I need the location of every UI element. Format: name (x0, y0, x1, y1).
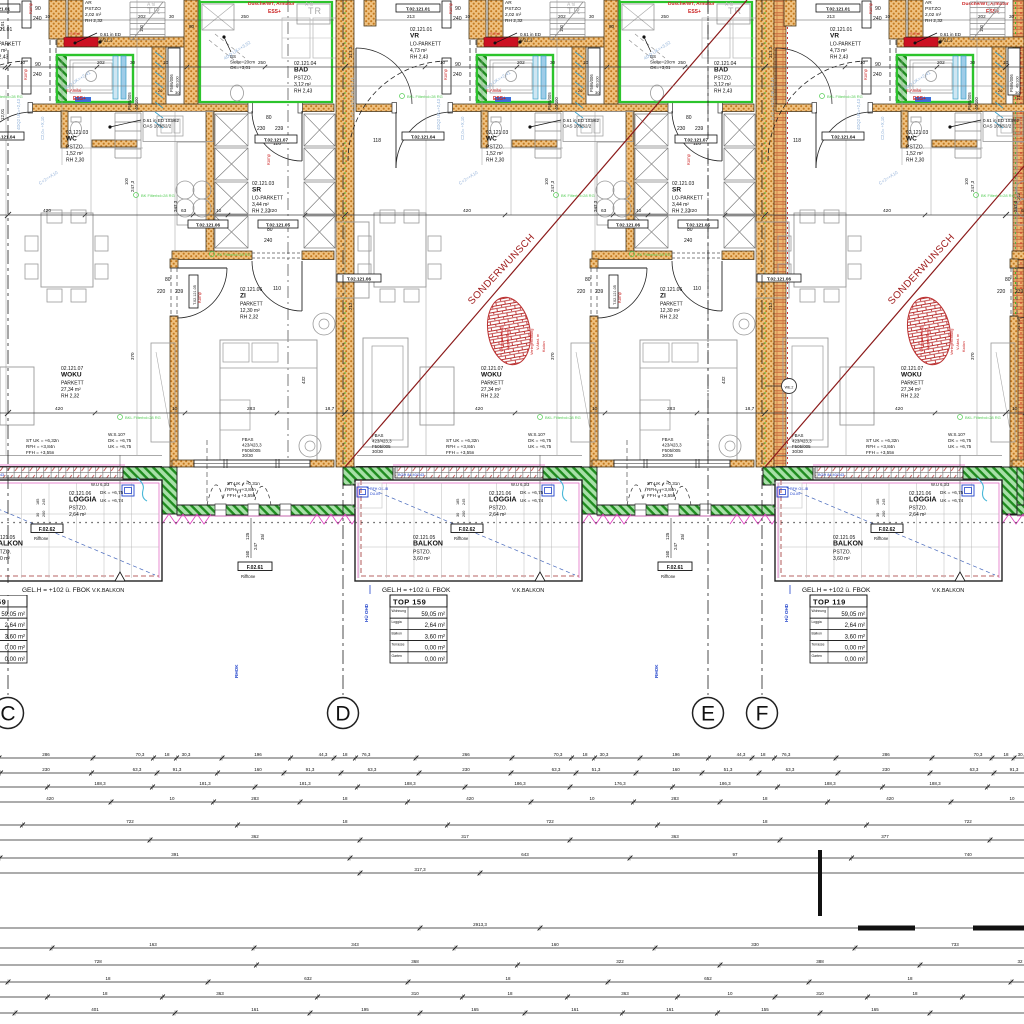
svg-text:161: 161 (251, 1007, 259, 1012)
svg-text:51,3: 51,3 (592, 767, 601, 772)
svg-text:230: 230 (42, 767, 50, 772)
svg-text:195: 195 (361, 1007, 369, 1012)
svg-text:181,3: 181,3 (199, 781, 211, 786)
svg-text:165: 165 (871, 1007, 879, 1012)
svg-text:330: 330 (751, 942, 759, 947)
svg-text:196: 196 (672, 752, 680, 757)
svg-text:176,3: 176,3 (614, 781, 626, 786)
svg-text:165: 165 (471, 1007, 479, 1012)
svg-text:70,3: 70,3 (974, 752, 983, 757)
svg-text:155: 155 (761, 1007, 769, 1012)
svg-text:362: 362 (251, 834, 259, 839)
svg-text:18: 18 (762, 796, 768, 801)
svg-text:91,3: 91,3 (1010, 767, 1019, 772)
svg-text:230: 230 (882, 767, 890, 772)
svg-text:160: 160 (672, 767, 680, 772)
svg-text:2913,3: 2913,3 (473, 922, 487, 927)
svg-text:266: 266 (462, 752, 470, 757)
svg-text:196: 196 (254, 752, 262, 757)
svg-text:317,3: 317,3 (414, 867, 426, 872)
svg-text:18: 18 (164, 752, 170, 757)
svg-text:18: 18 (505, 976, 511, 981)
svg-text:160: 160 (254, 767, 262, 772)
svg-text:12,01: 12,01 (0, 108, 5, 120)
svg-text:322: 322 (616, 959, 624, 964)
svg-text:91,3: 91,3 (306, 767, 315, 772)
svg-text:10: 10 (589, 796, 595, 801)
svg-text:160: 160 (551, 942, 559, 947)
svg-text:643: 643 (521, 852, 529, 857)
svg-text:420: 420 (46, 796, 54, 801)
svg-text:18: 18 (507, 991, 513, 996)
svg-text:63,3: 63,3 (970, 767, 979, 772)
svg-text:286: 286 (42, 752, 50, 757)
svg-text:18: 18 (760, 752, 766, 757)
svg-text:E: E (701, 703, 715, 726)
svg-text:44,3: 44,3 (737, 752, 746, 757)
svg-text:283: 283 (671, 796, 679, 801)
svg-text:420: 420 (886, 796, 894, 801)
svg-text:18: 18 (1003, 752, 1009, 757)
svg-text:632: 632 (304, 976, 312, 981)
svg-text:722: 722 (546, 819, 554, 824)
svg-text:10: 10 (1009, 796, 1015, 801)
svg-text:186,3: 186,3 (514, 781, 526, 786)
svg-text:652: 652 (704, 976, 712, 981)
svg-text:30,3: 30,3 (182, 752, 191, 757)
svg-text:283: 283 (251, 796, 259, 801)
svg-text:188,3: 188,3 (929, 781, 941, 786)
svg-text:C: C (0, 703, 15, 726)
svg-text:368: 368 (411, 959, 419, 964)
svg-text:D: D (335, 703, 350, 726)
svg-text:18: 18 (105, 976, 111, 981)
svg-text:70,3: 70,3 (554, 752, 563, 757)
svg-text:363: 363 (216, 991, 224, 996)
svg-text:F: F (756, 703, 769, 726)
svg-text:76,3: 76,3 (782, 752, 791, 757)
svg-text:420: 420 (466, 796, 474, 801)
svg-text:18: 18 (342, 796, 348, 801)
svg-text:51,3: 51,3 (724, 767, 733, 772)
svg-text:18: 18 (907, 976, 913, 981)
svg-text:76,3: 76,3 (362, 752, 371, 757)
svg-text:388: 388 (816, 959, 824, 964)
svg-text:63,3: 63,3 (786, 767, 795, 772)
svg-text:18: 18 (912, 991, 918, 996)
svg-text:161: 161 (666, 1007, 674, 1012)
svg-text:32: 32 (1017, 959, 1023, 964)
svg-text:310: 310 (816, 991, 824, 996)
svg-text:722: 722 (126, 819, 134, 824)
svg-text:733: 733 (951, 942, 959, 947)
svg-text:161: 161 (571, 1007, 579, 1012)
svg-text:186,3: 186,3 (719, 781, 731, 786)
svg-text:18: 18 (582, 752, 588, 757)
svg-text:401: 401 (91, 1007, 99, 1012)
svg-text:286: 286 (882, 752, 890, 757)
svg-text:97: 97 (732, 852, 738, 857)
svg-text:10: 10 (727, 991, 733, 996)
svg-text:91,3: 91,3 (173, 767, 182, 772)
svg-text:740: 740 (964, 852, 972, 857)
svg-text:188,3: 188,3 (824, 781, 836, 786)
svg-text:18: 18 (762, 819, 768, 824)
svg-text:343: 343 (351, 942, 359, 947)
svg-text:728: 728 (94, 959, 102, 964)
svg-text:GEL.H = +102 ü. FBOK: GEL.H = +102 ü. FBOK (22, 587, 91, 594)
svg-text:391: 391 (171, 852, 179, 857)
svg-text:63,3: 63,3 (133, 767, 142, 772)
svg-text:317: 317 (461, 834, 469, 839)
svg-text:TOP 119: TOP 119 (813, 598, 846, 607)
svg-text:70,3: 70,3 (136, 752, 145, 757)
svg-text:310: 310 (411, 991, 419, 996)
svg-text:377: 377 (881, 834, 889, 839)
svg-text:63,3: 63,3 (552, 767, 561, 772)
svg-text:181,3: 181,3 (299, 781, 311, 786)
svg-text:63,3: 63,3 (368, 767, 377, 772)
svg-text:30,3: 30,3 (1018, 752, 1024, 757)
svg-text:18: 18 (342, 752, 348, 757)
svg-text:363: 363 (671, 834, 679, 839)
svg-text:163: 163 (149, 942, 157, 947)
svg-text:230: 230 (462, 767, 470, 772)
svg-text:10: 10 (169, 796, 175, 801)
svg-text:188,3: 188,3 (404, 781, 416, 786)
svg-text:188,3: 188,3 (94, 781, 106, 786)
svg-text:722: 722 (964, 819, 972, 824)
svg-text:44,3: 44,3 (319, 752, 328, 757)
svg-text:30,3: 30,3 (600, 752, 609, 757)
svg-text:363: 363 (621, 991, 629, 996)
svg-text:18: 18 (342, 819, 348, 824)
svg-text:18: 18 (102, 991, 108, 996)
svg-text:WE.2: WE.2 (785, 386, 794, 390)
